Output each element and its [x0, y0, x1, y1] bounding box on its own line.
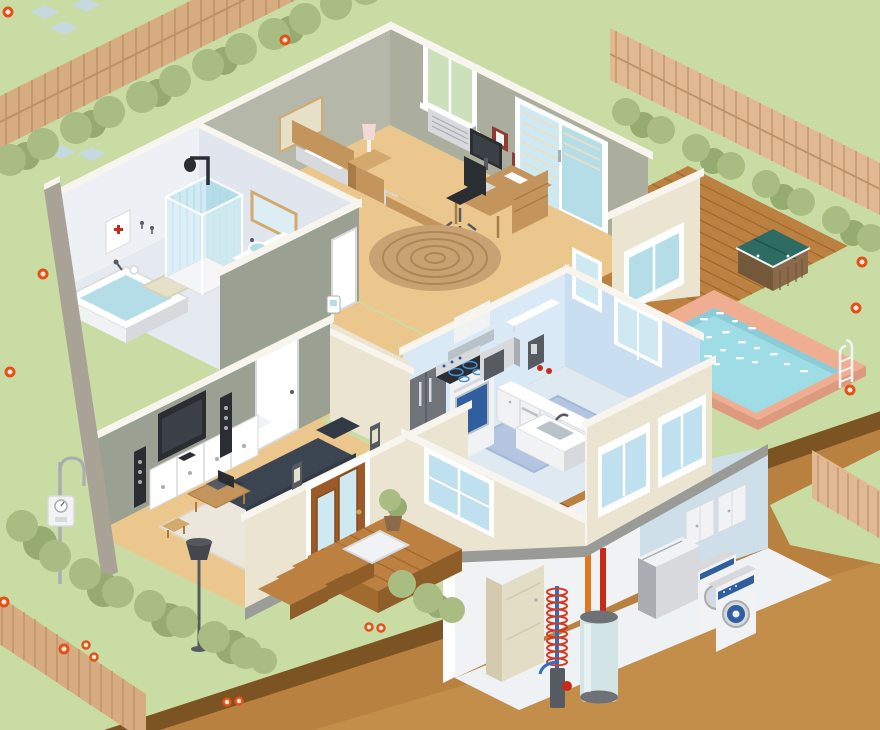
wall-sconce-right: [370, 422, 380, 451]
toilet-paper-holder: [130, 266, 138, 274]
round-rug: [369, 225, 501, 291]
tomato: [546, 368, 552, 374]
hot-water-pipe: [585, 552, 591, 620]
shutoff-valve[interactable]: [562, 681, 572, 691]
tomato: [537, 365, 543, 371]
cold-water-pipe: [600, 548, 606, 616]
wall-sconce-left: [292, 461, 302, 490]
furnace[interactable]: [486, 557, 544, 682]
home-illustration: [0, 0, 880, 730]
thermostat[interactable]: [327, 296, 340, 313]
